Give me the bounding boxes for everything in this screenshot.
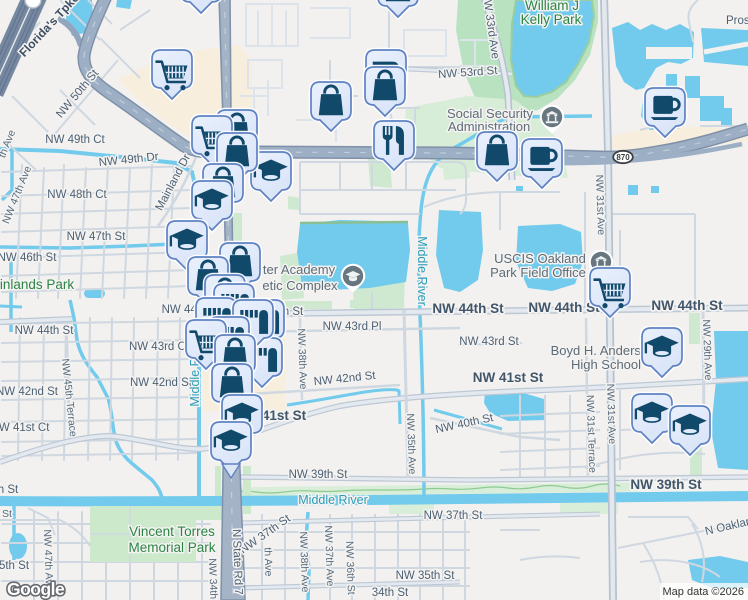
svg-text:NW 39th St: NW 39th St (289, 469, 349, 481)
svg-text:NW 48th Ct: NW 48th Ct (47, 189, 107, 201)
svg-text:Kelly Park: Kelly Park (521, 12, 582, 27)
svg-text:NW 44th St: NW 44th St (651, 298, 723, 313)
svg-text:NW 41st St: NW 41st St (473, 370, 544, 385)
svg-text:Middle River: Middle River (415, 236, 429, 305)
svg-text:h St: h St (0, 484, 19, 496)
svg-text:etic Complex: etic Complex (262, 278, 338, 293)
svg-text:NW 38th Ave: NW 38th Ave (295, 328, 309, 390)
svg-text:NW 31st Ave: NW 31st Ave (593, 174, 607, 235)
svg-text:NW 36th St: NW 36th St (343, 541, 357, 595)
svg-text:NW 46th St: NW 46th St (0, 252, 57, 264)
svg-text:Google: Google (7, 579, 65, 599)
svg-text:Vincent Torres: Vincent Torres (129, 524, 215, 539)
svg-text:Middle River: Middle River (298, 493, 367, 507)
svg-text:NW 35th St: NW 35th St (396, 570, 456, 582)
svg-text:NW 37th Ave: NW 37th Ave (322, 525, 336, 587)
svg-text:inlands Park: inlands Park (0, 277, 74, 292)
svg-text:5th St: 5th St (0, 560, 30, 572)
svg-text:St: St (2, 508, 12, 520)
svg-text:NW 38th Ave: NW 38th Ave (297, 531, 311, 593)
svg-text:th Ave: th Ave (261, 547, 274, 577)
svg-text:NW 42nd St: NW 42nd St (130, 377, 193, 389)
svg-text:NW 34th Av: NW 34th Av (206, 558, 220, 600)
svg-text:NW 42nd St: NW 42nd St (0, 386, 59, 398)
svg-text:NW 43rd Ct: NW 43rd Ct (129, 341, 190, 353)
svg-text:NW 44th St: NW 44th St (432, 301, 504, 316)
svg-text:Park Field Office: Park Field Office (490, 265, 586, 280)
svg-text:NW 37th St: NW 37th St (424, 510, 484, 522)
svg-text:Memorial Park: Memorial Park (128, 540, 215, 555)
svg-text:Boyd H. Anderson: Boyd H. Anderson (551, 343, 656, 358)
svg-text:NW 43rd St: NW 43rd St (459, 336, 519, 348)
svg-text:34th St: 34th St (372, 587, 409, 599)
svg-text:Prosperity: Prosperity (726, 15, 748, 27)
svg-text:N State Rd 7: N State Rd 7 (230, 529, 244, 595)
svg-text:NW 43rd Pl: NW 43rd Pl (323, 321, 382, 333)
svg-text:NW 39th St: NW 39th St (630, 477, 702, 492)
svg-text:NW 31st Ave: NW 31st Ave (604, 383, 618, 444)
svg-text:High School: High School (571, 357, 641, 372)
svg-text:NW 35th Ave: NW 35th Ave (404, 413, 418, 475)
svg-text:ter Academy: ter Academy (263, 262, 336, 277)
svg-text:41st St: 41st St (262, 408, 307, 423)
svg-text:870: 870 (616, 153, 630, 162)
svg-text:NW 29th Ave: NW 29th Ave (700, 319, 714, 381)
svg-text:USCIS Oakland: USCIS Oakland (494, 251, 586, 266)
svg-text:NW 44th St: NW 44th St (15, 325, 75, 337)
svg-text:NW 47th St: NW 47th St (67, 231, 127, 243)
svg-text:Map data ©2026: Map data ©2026 (663, 586, 745, 598)
svg-text:NW 41st Ct: NW 41st Ct (0, 422, 50, 434)
svg-text:NW 49th Ct: NW 49th Ct (45, 134, 105, 146)
